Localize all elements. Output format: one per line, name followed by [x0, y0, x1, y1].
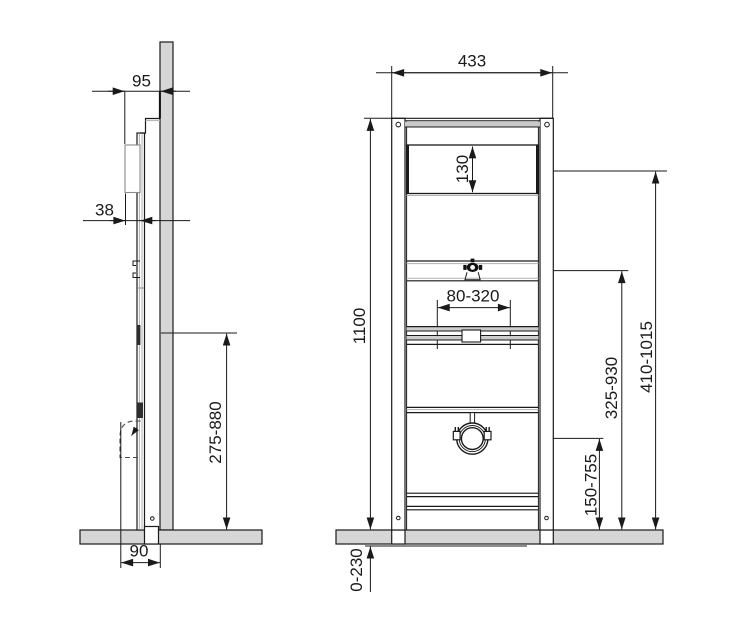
right-foot [540, 530, 553, 544]
water-supply-fixture [463, 259, 482, 280]
dim-label-95: 95 [132, 72, 151, 91]
dim-label-1100: 1100 [350, 308, 369, 345]
dim-label-433: 433 [458, 52, 486, 71]
frame-foot-side [145, 517, 159, 544]
dim-label-410-1015: 410-1015 [637, 321, 656, 393]
wall-face-reference-strip [159, 91, 161, 119]
technical-drawing-canvas: 95 38 275-880 90 [0, 0, 755, 631]
dim-clamp-height-range: 150-755 [553, 438, 604, 529]
drain-pipe-clamp [453, 413, 491, 455]
dim-label-325-930: 325-930 [602, 357, 621, 419]
dim-label-38: 38 [95, 201, 114, 220]
rail-joint-mark [137, 287, 144, 289]
mounting-plate-side [137, 325, 140, 345]
wall-bracket-side [140, 119, 160, 134]
floor-slab-front [336, 530, 663, 544]
dim-label-90: 90 [130, 542, 149, 561]
dim-foot-adjust-range: 0-230 [347, 547, 371, 592]
top-right-hole [545, 122, 550, 127]
top-left-hole [396, 122, 401, 127]
bottom-left-hole [397, 516, 401, 520]
cistern-box-side [125, 145, 140, 193]
installation-frame-drawing: 95 38 275-880 90 [0, 0, 755, 631]
dim-frame-height: 1100 [350, 118, 392, 529]
right-rail [540, 118, 553, 530]
dim-label-0-230: 0-230 [347, 548, 366, 591]
dim-label-130: 130 [453, 155, 472, 183]
bottom-right-hole [545, 516, 549, 520]
dim-upper-height-range: 410-1015 [553, 171, 667, 529]
bottom-bars [407, 493, 539, 510]
dim-label-80-320: 80-320 [447, 287, 500, 306]
dim-label-275-880: 275-880 [206, 401, 225, 463]
front-view: 130 80-320 [336, 52, 667, 593]
dim-label-150-755: 150-755 [581, 454, 600, 516]
clamp-left-bolt [453, 427, 460, 440]
left-foot [392, 530, 405, 544]
dim-frame-width: 433 [376, 52, 568, 119]
top-crossbar [392, 118, 554, 127]
drain-flow-arrow [132, 428, 138, 436]
supply-crossbar [407, 259, 539, 281]
rail-connector-block [462, 330, 481, 342]
floor-slab-side [80, 530, 262, 544]
left-rail [392, 118, 405, 530]
crossbar-side [137, 403, 143, 419]
mounting-rails-band [407, 327, 539, 345]
wall-section [160, 42, 173, 530]
side-view: 95 38 275-880 90 [80, 42, 262, 568]
clamp-stem [470, 413, 474, 424]
clamp-crossbar [407, 407, 539, 412]
